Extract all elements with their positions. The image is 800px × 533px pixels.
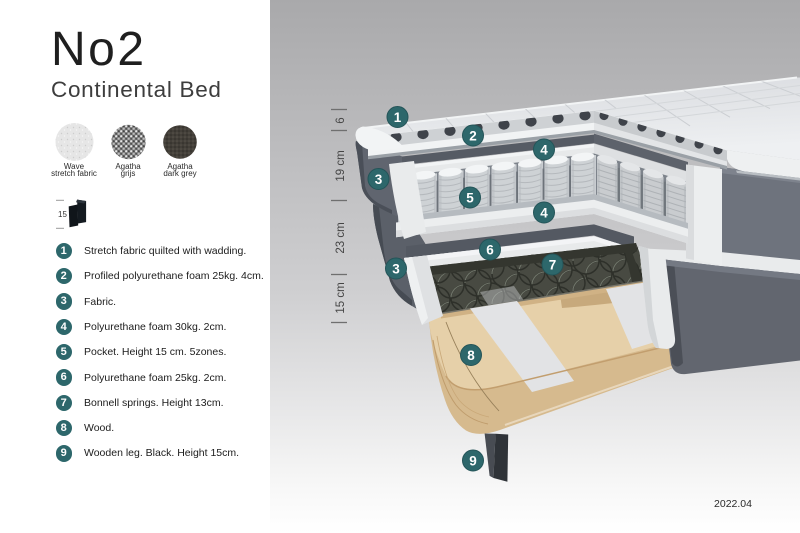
svg-text:2022.04: 2022.04 — [714, 498, 752, 510]
svg-text:8: 8 — [467, 348, 475, 363]
svg-text:6: 6 — [486, 242, 494, 257]
svg-text:4: 4 — [540, 205, 548, 220]
svg-text:15 cm: 15 cm — [335, 282, 347, 313]
svg-text:23 cm: 23 cm — [335, 222, 347, 253]
svg-text:7: 7 — [549, 257, 557, 272]
svg-text:9: 9 — [469, 453, 477, 468]
svg-text:3: 3 — [392, 261, 400, 276]
svg-text:4: 4 — [540, 142, 548, 157]
svg-text:1: 1 — [394, 110, 402, 125]
svg-text:2: 2 — [469, 128, 477, 143]
svg-text:5: 5 — [466, 190, 474, 205]
svg-text:3: 3 — [375, 172, 383, 187]
svg-text:15: 15 — [58, 210, 67, 219]
svg-text:19 cm: 19 cm — [335, 150, 347, 181]
svg-text:6: 6 — [335, 117, 347, 123]
